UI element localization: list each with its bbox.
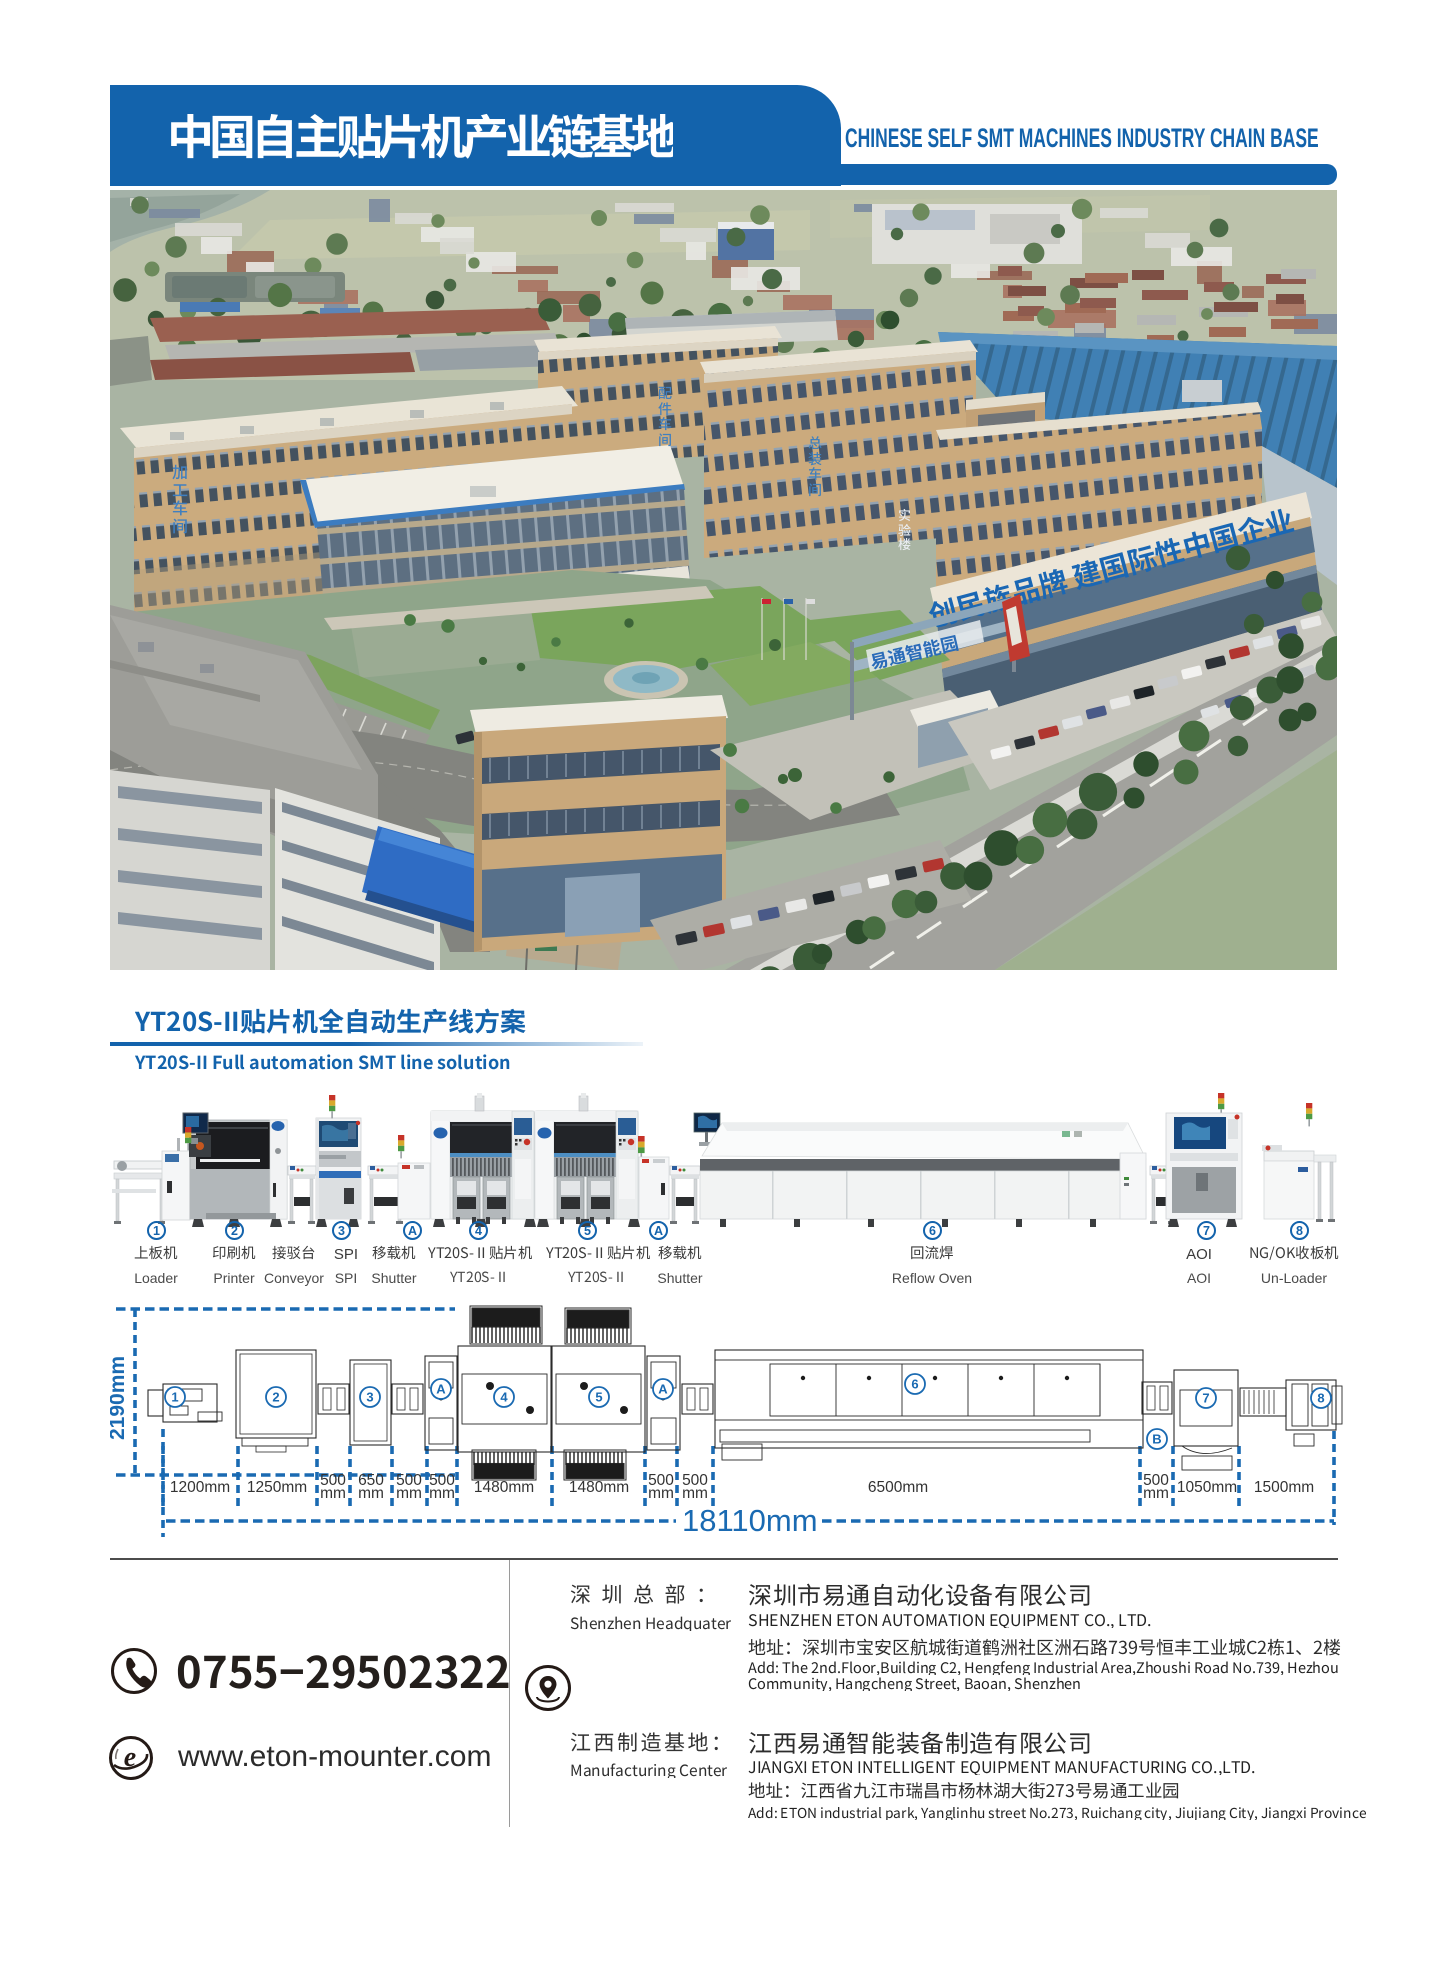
- svg-text:A: A: [436, 1382, 446, 1397]
- svg-text:5: 5: [595, 1390, 602, 1405]
- svg-text:7: 7: [1202, 1391, 1209, 1406]
- svg-text:B: B: [1152, 1432, 1161, 1447]
- svg-text:1050mm: 1050mm: [1177, 1479, 1237, 1496]
- svg-text:mm: mm: [396, 1485, 422, 1502]
- svg-text:6500mm: 6500mm: [868, 1479, 928, 1496]
- svg-text:4: 4: [500, 1390, 508, 1405]
- svg-text:1: 1: [171, 1390, 178, 1405]
- svg-text:1200mm: 1200mm: [170, 1479, 230, 1496]
- svg-text:mm: mm: [429, 1485, 455, 1502]
- svg-text:1480mm: 1480mm: [474, 1479, 534, 1496]
- svg-text:mm: mm: [358, 1485, 384, 1502]
- svg-text:3: 3: [366, 1390, 373, 1405]
- svg-text:mm: mm: [648, 1485, 674, 1502]
- svg-text:1500mm: 1500mm: [1254, 1479, 1314, 1496]
- svg-text:mm: mm: [320, 1485, 346, 1502]
- svg-text:A: A: [658, 1382, 668, 1397]
- svg-text:2190mm: 2190mm: [110, 1356, 129, 1440]
- svg-text:18110mm: 18110mm: [682, 1503, 818, 1538]
- svg-text:mm: mm: [682, 1485, 708, 1502]
- svg-text:8: 8: [1317, 1391, 1324, 1406]
- svg-text:1480mm: 1480mm: [569, 1479, 629, 1496]
- svg-text:2: 2: [272, 1390, 279, 1405]
- svg-text:mm: mm: [1143, 1485, 1169, 1502]
- svg-text:1250mm: 1250mm: [247, 1479, 307, 1496]
- svg-text:6: 6: [911, 1377, 918, 1392]
